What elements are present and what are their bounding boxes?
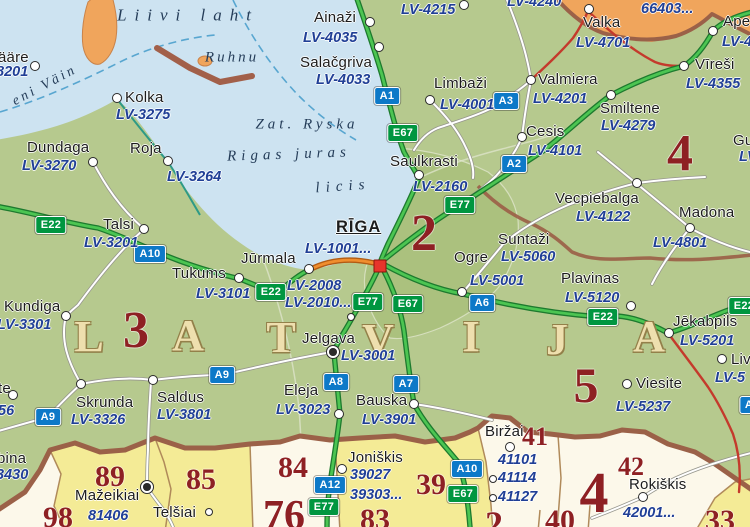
country-letter: L: [74, 315, 103, 359]
postal-code: 41127: [498, 489, 537, 505]
postal-zone-number: 33: [705, 506, 735, 527]
country-letter: T: [266, 316, 295, 360]
a-road-badge-a6: A6: [469, 294, 495, 312]
city-name: Bauska: [356, 392, 407, 409]
city-name: Viesite: [636, 375, 682, 392]
city-marker: [76, 379, 86, 389]
country-letter: A: [633, 315, 665, 359]
postal-code: LV-5001: [470, 273, 524, 289]
postal-zone-number: 4: [667, 128, 693, 180]
postal-code: 8201: [0, 64, 28, 80]
postal-code: LV-5201: [680, 333, 734, 349]
city-name: Salačgriva: [300, 54, 372, 71]
city-name: Valka: [583, 14, 620, 31]
city-marker: [374, 42, 384, 52]
postal-code: LV-3001: [341, 348, 395, 364]
city-marker: [234, 273, 244, 283]
postal-code: LV-3264: [167, 169, 221, 185]
city-name: Gu: [733, 132, 750, 149]
country-letter: I: [462, 315, 479, 359]
postal-zone-number: 2: [411, 208, 437, 260]
city-name: Suntaži: [498, 231, 549, 248]
city-name: Kundiga: [4, 298, 60, 315]
city-marker: [664, 328, 674, 338]
city-name: Ape: [723, 13, 750, 30]
city-marker: [326, 345, 340, 359]
city-marker: [459, 0, 469, 10]
a-road-badge-a9: A9: [35, 408, 61, 426]
city-name: bina: [0, 450, 26, 467]
postal-zone-number: 98: [43, 503, 73, 527]
city-marker: [505, 442, 515, 452]
sea-label: licis: [315, 178, 371, 197]
postal-code: LV-3801: [157, 407, 211, 423]
postal-code: LV-4240: [507, 0, 561, 10]
postal-code: 56: [0, 403, 14, 419]
city-marker: [632, 178, 642, 188]
city-marker: [526, 75, 536, 85]
city-name: Smiltene: [600, 100, 660, 117]
postal-code: LV-3101: [196, 286, 250, 302]
city-name: Talsi: [103, 216, 134, 233]
city-name: Rokiškis: [629, 476, 686, 493]
postal-code: LV-4: [739, 149, 750, 165]
city-marker: [679, 61, 689, 71]
city-name: Vīreši: [695, 56, 735, 73]
e-road-badge-e22: E22: [255, 283, 286, 301]
city-name: Tukums: [172, 265, 226, 282]
latvia-postal-map: 66403... Liivi lahtRuhnueni VäinZat. Rys…: [0, 0, 750, 527]
postal-code: LV-4801: [653, 235, 707, 251]
city-name: Vecpiebalga: [555, 190, 639, 207]
city-name: Madona: [679, 204, 734, 221]
city-name: RĪGA: [336, 218, 381, 237]
city-marker: [88, 157, 98, 167]
a-road-badge-a10: A10: [134, 245, 166, 263]
sea-label: Zat. Ryska: [255, 118, 358, 133]
postal-code: LV-4215: [401, 2, 455, 18]
postal-code: 39303...: [350, 487, 402, 503]
a-road-badge-a9: A9: [209, 366, 235, 384]
postal-code: LV-2008: [287, 278, 341, 294]
a-road-badge-a1: A1: [374, 87, 400, 105]
postal-code: LV-5237: [616, 399, 670, 415]
postal-code: LV-4201: [533, 91, 587, 107]
postal-zone-number: 5: [574, 360, 599, 410]
e-road-badge-e67: E67: [387, 124, 418, 142]
city-name: Saldus: [157, 389, 204, 406]
city-marker: [622, 379, 632, 389]
postal-zone-number: 83: [360, 505, 390, 527]
postal-code: LV-5060: [501, 249, 555, 265]
city-marker: [717, 354, 727, 364]
city-marker: [606, 90, 616, 100]
a-road-badge-a7: A7: [393, 375, 419, 393]
city-name: Eleja: [284, 382, 318, 399]
postal-code: LV-4: [722, 34, 750, 50]
city-marker: [584, 4, 594, 14]
city-marker: [347, 313, 355, 321]
city-marker: [489, 475, 497, 483]
capital-marker: [374, 260, 387, 273]
city-name: Skrunda: [76, 394, 133, 411]
country-letter: J: [546, 318, 568, 362]
postal-code: LV-5: [715, 370, 745, 386]
postal-zone-number: 84: [278, 453, 308, 483]
city-marker: [140, 480, 154, 494]
postal-code: LV-2160: [413, 179, 467, 195]
postal-code: LV-3901: [362, 412, 416, 428]
city-marker: [708, 26, 718, 36]
a-road-badge-a2: A2: [501, 155, 527, 173]
city-marker: [163, 156, 173, 166]
postal-code: LV-3275: [116, 107, 170, 123]
postal-zone-number: 76: [263, 495, 305, 527]
postal-code: LV-4035: [303, 30, 357, 46]
postal-code: LV-4033: [316, 72, 370, 88]
city-name: Joniškis: [348, 449, 403, 466]
city-marker: [304, 264, 314, 274]
city-name: Cesis: [526, 123, 565, 140]
city-marker: [626, 301, 636, 311]
postal-code: LV-4701: [576, 35, 630, 51]
postal-zone-number: 40: [545, 506, 575, 527]
city-name: Valmiera: [538, 71, 598, 88]
e-road-badge-e77: E77: [352, 293, 383, 311]
postal-code: LV-4279: [601, 118, 655, 134]
postal-code: LV-3326: [71, 412, 125, 428]
e-road-badge-e22: E22: [587, 308, 618, 326]
sea-label: Ruhnu: [205, 51, 259, 66]
city-name: Limbaži: [434, 75, 487, 92]
postal-code: 41101: [498, 452, 537, 468]
postal-code: LV-4355: [686, 76, 740, 92]
postal-code: 3430: [0, 467, 28, 483]
postal-code: 41114: [498, 470, 536, 486]
map-labels-layer: 66403... Liivi lahtRuhnueni VäinZat. Rys…: [0, 0, 750, 527]
postal-zone-number: 85: [186, 465, 216, 495]
postal-code-estonia: 66403...: [641, 1, 693, 17]
a-road-badge-a10: A10: [451, 460, 483, 478]
e-road-badge-e67: E67: [392, 295, 423, 313]
postal-code: 81406: [88, 508, 128, 524]
city-marker: [425, 95, 435, 105]
postal-code: LV-4101: [528, 143, 582, 159]
sea-label: Rigas juras: [227, 145, 351, 164]
postal-zone-number: 2: [485, 506, 503, 527]
city-marker: [8, 390, 18, 400]
postal-code: LV-1001...: [305, 241, 371, 257]
postal-code: LV-4001: [440, 97, 494, 113]
postal-code: LV-3301: [0, 317, 51, 333]
city-name: Jūrmala: [241, 250, 296, 267]
city-marker: [457, 287, 467, 297]
postal-zone-number: 4: [580, 464, 609, 522]
postal-code: LV-3201: [84, 235, 138, 251]
city-name: Telšiai: [153, 504, 196, 521]
city-marker: [414, 170, 424, 180]
postal-code: 39027: [350, 467, 390, 483]
sea-label: Liivi laht: [117, 7, 259, 24]
postal-zone-number: 39: [416, 470, 446, 500]
postal-code: LV-3270: [22, 158, 76, 174]
city-marker: [334, 409, 344, 419]
postal-code: 42001...: [623, 505, 675, 521]
e-road-badge-e67: E67: [447, 485, 478, 503]
a-road-badge-a: A: [739, 396, 750, 414]
postal-code: LV-3023: [276, 402, 330, 418]
city-name: Roja: [130, 140, 162, 157]
city-marker: [489, 494, 497, 502]
city-marker: [365, 17, 375, 27]
city-name: Dundaga: [27, 139, 89, 156]
country-letter: A: [172, 314, 204, 358]
city-name: Biržai: [485, 423, 524, 440]
city-marker: [61, 311, 71, 321]
city-name: Jelgava: [302, 330, 355, 347]
city-name: Plavinas: [561, 270, 619, 287]
city-name: Ainaži: [314, 9, 356, 26]
city-name: Saulkrasti: [390, 153, 458, 170]
city-marker: [30, 61, 40, 71]
city-name: Mažeikiai: [75, 487, 139, 504]
city-name: Jēkabpils: [673, 313, 737, 330]
city-marker: [148, 375, 158, 385]
city-marker: [139, 224, 149, 234]
postal-code: LV-4122: [576, 209, 630, 225]
postal-zone-number: 41: [522, 424, 548, 450]
postal-code: LV-5120: [565, 290, 619, 306]
a-road-badge-a8: A8: [323, 373, 349, 391]
city-marker: [205, 508, 213, 516]
a-road-badge-a12: A12: [314, 476, 346, 494]
a-road-badge-a3: A3: [493, 92, 519, 110]
city-marker: [112, 93, 122, 103]
city-name: Liv: [731, 351, 750, 368]
city-marker: [638, 492, 648, 502]
city-marker: [517, 132, 527, 142]
city-name: Ogre: [454, 249, 488, 266]
city-marker: [337, 464, 347, 474]
city-marker: [685, 223, 695, 233]
city-marker: [409, 399, 419, 409]
city-name: Kolka: [125, 89, 164, 106]
e-road-badge-e77: E77: [444, 196, 475, 214]
postal-zone-number: 3: [123, 305, 149, 357]
e-road-badge-e77: E77: [308, 498, 339, 516]
postal-code: LV-2010...: [285, 295, 351, 311]
e-road-badge-e22: E22: [35, 216, 66, 234]
